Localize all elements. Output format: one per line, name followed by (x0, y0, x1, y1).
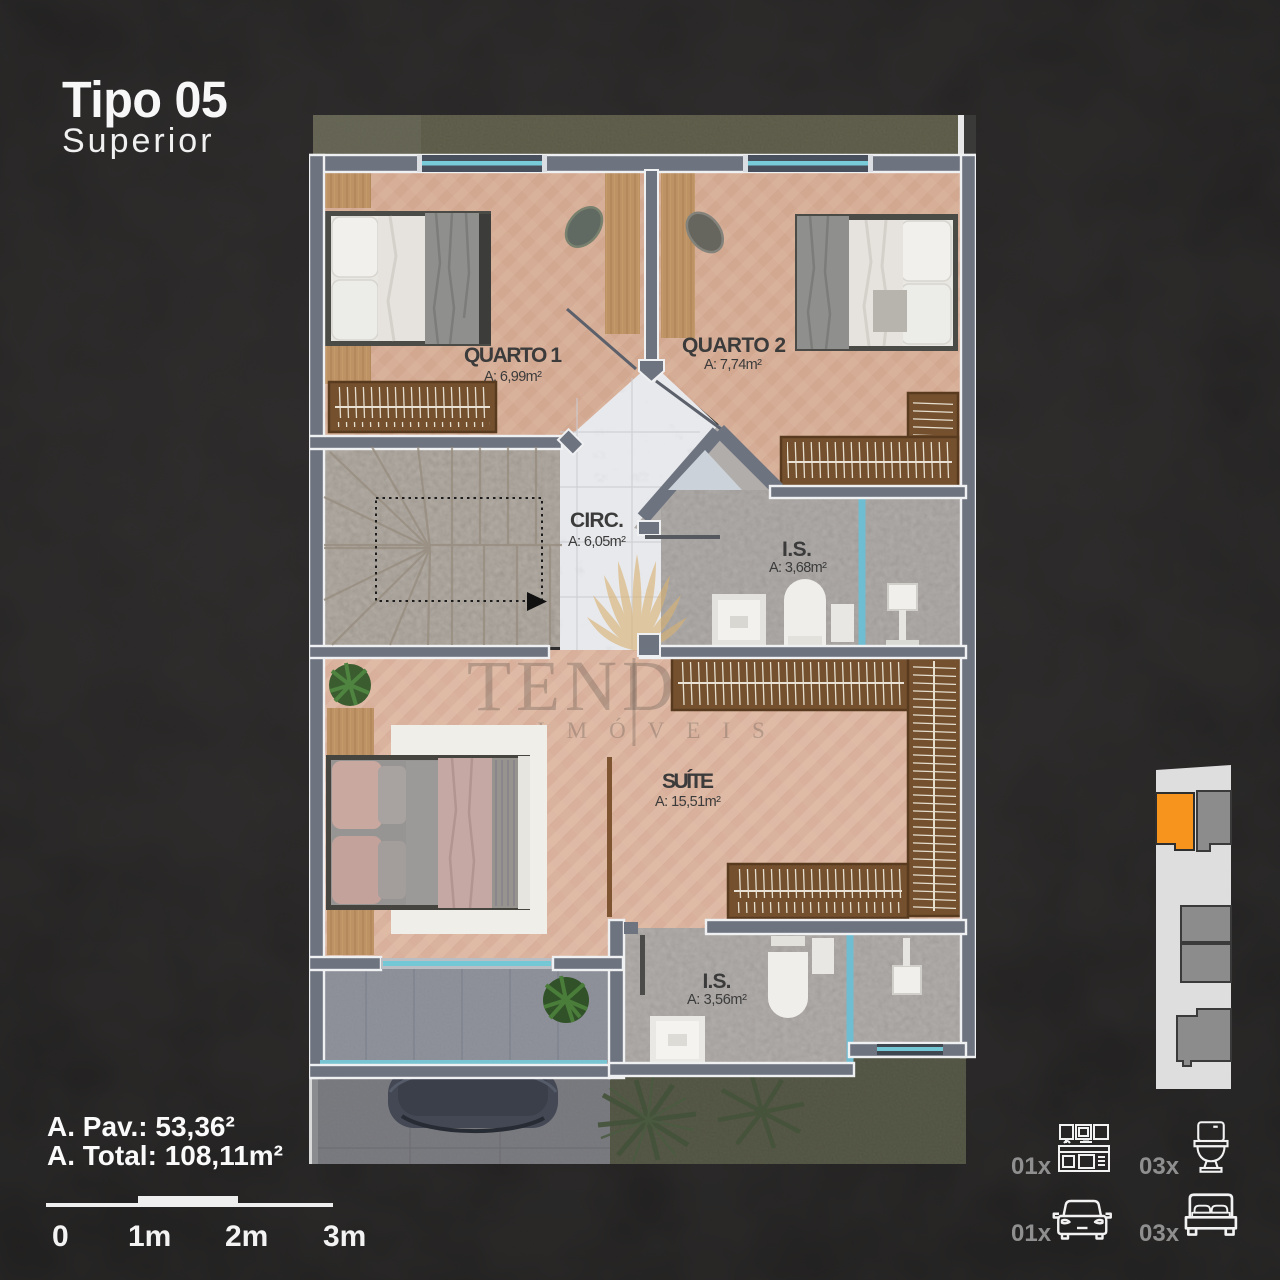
svg-text:1m: 1m (128, 1220, 171, 1252)
svg-text:QUARTO 1: QUARTO 1 (464, 344, 562, 367)
svg-text:CIRC.: CIRC. (570, 509, 624, 532)
svg-text:A: 7,74m²: A: 7,74m² (704, 357, 762, 373)
svg-text:A: 6,99m²: A: 6,99m² (484, 369, 542, 385)
svg-text:01x: 01x (1011, 1153, 1052, 1180)
svg-text:03x: 03x (1139, 1153, 1180, 1180)
svg-text:0: 0 (52, 1220, 69, 1252)
svg-text:03x: 03x (1139, 1220, 1180, 1247)
svg-text:A: 3,56m²: A: 3,56m² (687, 992, 747, 1008)
svg-text:I.S.: I.S. (703, 970, 732, 993)
svg-text:01x: 01x (1011, 1220, 1052, 1247)
svg-text:3m: 3m (323, 1220, 366, 1252)
svg-text:I.S.: I.S. (782, 538, 812, 561)
svg-text:QUARTO 2: QUARTO 2 (682, 334, 786, 357)
svg-text:A: 15,51m²: A: 15,51m² (655, 794, 721, 810)
svg-text:2m: 2m (225, 1220, 268, 1252)
svg-text:A: 3,68m²: A: 3,68m² (769, 560, 827, 576)
svg-text:IMÓVEIS: IMÓVEIS (537, 717, 787, 743)
svg-text:SUÍTE: SUÍTE (662, 770, 714, 793)
svg-text:A: 6,05m²: A: 6,05m² (568, 534, 626, 550)
